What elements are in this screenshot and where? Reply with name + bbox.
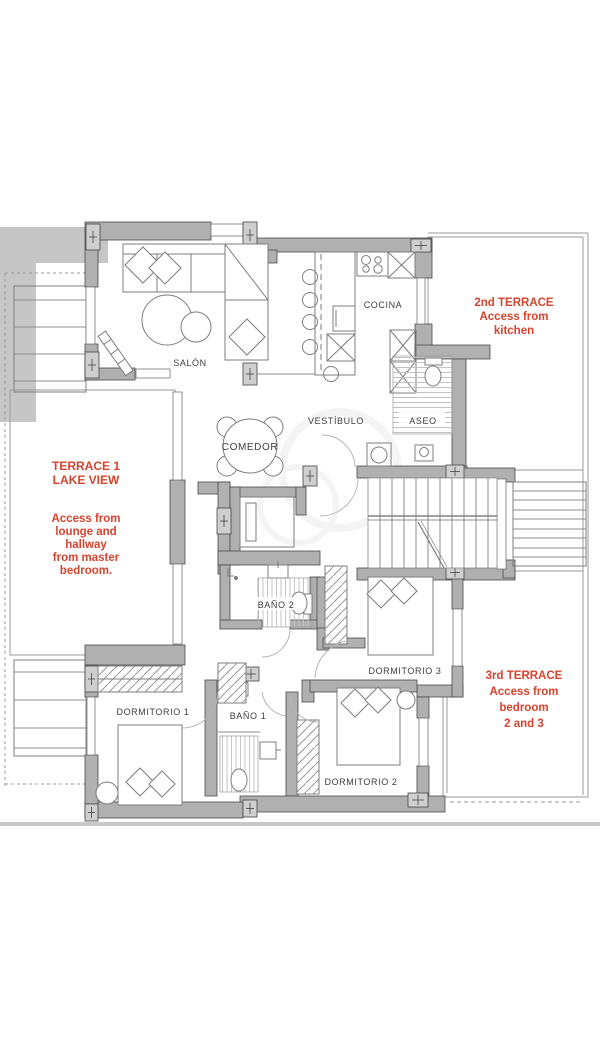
floor-plan-image: SALÓN COCINA VESTÍBULO ASEO COMEDOR BAÑO… (0, 0, 600, 1040)
exterior-steps (513, 482, 586, 566)
room-label-dormitorio2: DORMITORIO 2 (324, 777, 397, 787)
kitchen-island (315, 252, 355, 375)
annotation-terrace2: 2nd TERRACE Access from kitchen (474, 297, 554, 337)
room-label-dormitorio1: DORMITORIO 1 (116, 707, 189, 717)
salon-sofa (123, 244, 268, 360)
wardrobe-dorm1 (98, 666, 182, 692)
salon-coffee-tables (142, 295, 211, 345)
wardrobe-dorm2 (297, 720, 319, 794)
terrace3-line-1: Access from (489, 686, 558, 698)
terrace1-line-6: bedroom. (60, 565, 112, 577)
room-label-bano2: BAÑO 2 (258, 600, 295, 610)
room-label-dormitorio3: DORMITORIO 3 (368, 666, 441, 676)
terrace1-line-5: from master (53, 552, 120, 564)
room-label-bano1: BAÑO 1 (230, 711, 267, 721)
bed-dorm2 (337, 687, 415, 765)
kitchen-stove (357, 252, 388, 276)
room-label-cocina: COCINA (364, 300, 403, 310)
page-divider (0, 822, 600, 826)
bed-dorm3 (367, 577, 433, 655)
terrace3-line-2: bedroom (499, 702, 548, 714)
floor-plan-svg: SALÓN COCINA VESTÍBULO ASEO COMEDOR BAÑO… (0, 0, 600, 1040)
terrace1-line-4: hallway (65, 539, 107, 551)
wardrobe-dorm3 (325, 566, 347, 644)
stairs (368, 478, 497, 568)
annotation-terrace1: TERRACE 1 LAKE VIEW Access from lounge a… (51, 459, 120, 577)
terrace2-line-2: kitchen (494, 325, 534, 337)
hall-closet (218, 663, 246, 703)
terrace3-line-3: 2 and 3 (504, 718, 544, 730)
bed-dorm1 (96, 725, 182, 805)
terrace3-line-0: 3rd TERRACE (486, 670, 563, 682)
terrace1-line-0: TERRACE 1 (52, 459, 120, 473)
terrace2-line-0: 2nd TERRACE (474, 297, 554, 309)
terrace1-line-2: Access from (51, 513, 120, 525)
terrace1-line-1: LAKE VIEW (53, 473, 120, 487)
room-label-vestibulo: VESTÍBULO (308, 416, 364, 426)
washing-machine (367, 443, 391, 466)
annotation-terrace3: 3rd TERRACE Access from bedroom 2 and 3 (486, 670, 563, 730)
bathroom-2 (258, 561, 312, 627)
terrace1-line-3: lounge and (55, 526, 116, 538)
room-label-salon: SALÓN (173, 358, 207, 368)
terrace2-line-1: Access from (479, 311, 548, 323)
aseo-room (393, 356, 452, 461)
room-label-comedor: COMEDOR (222, 442, 278, 453)
room-label-aseo: ASEO (409, 416, 436, 426)
